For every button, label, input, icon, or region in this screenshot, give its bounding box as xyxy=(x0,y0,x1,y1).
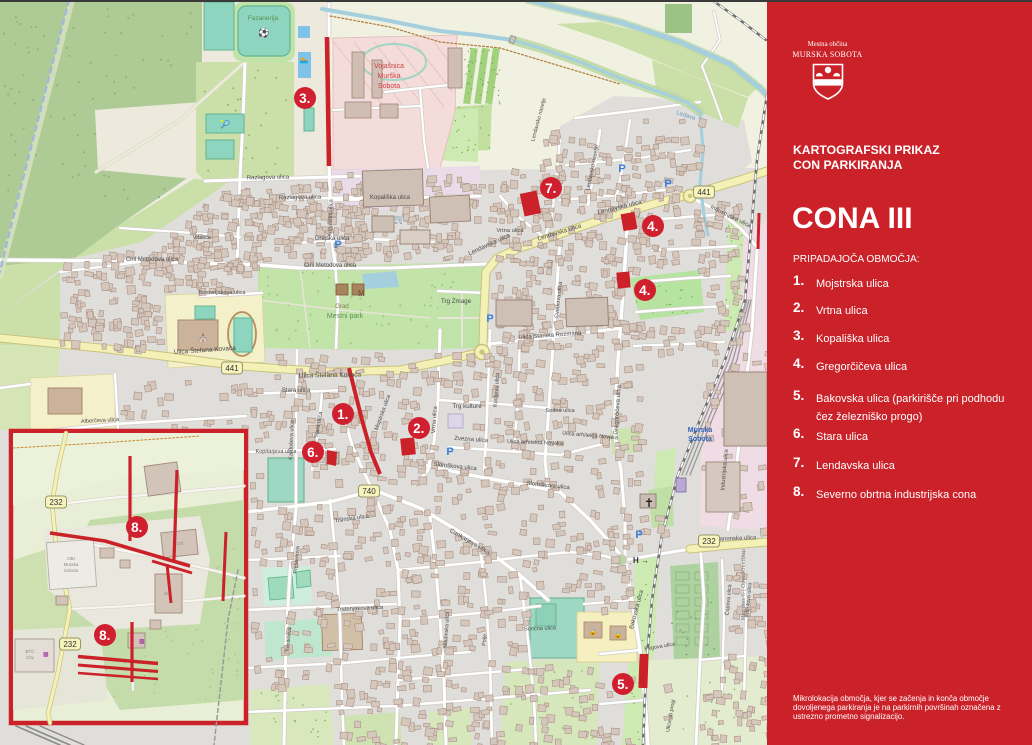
svg-text:BTC: BTC xyxy=(26,649,36,654)
svg-text:1.: 1. xyxy=(337,407,348,422)
svg-text:Razlagova ulica: Razlagova ulica xyxy=(247,175,290,182)
svg-text:Ciril Metodova ulica: Ciril Metodova ulica xyxy=(304,263,357,269)
svg-text:Fazanerija: Fazanerija xyxy=(248,15,279,22)
svg-text:7.: 7. xyxy=(545,181,556,196)
svg-text:H →: H → xyxy=(633,556,649,565)
svg-text:Razlagova ulica: Razlagova ulica xyxy=(279,195,322,202)
svg-text:Kopališka ulica: Kopališka ulica xyxy=(370,195,411,201)
svg-text:P: P xyxy=(635,529,642,541)
svg-text:Vojašnica: Vojašnica xyxy=(374,63,404,70)
svg-text:▩: ▩ xyxy=(139,639,145,645)
svg-text:P: P xyxy=(334,239,341,251)
svg-text:3.: 3. xyxy=(299,91,310,106)
svg-text:Murska: Murska xyxy=(64,562,79,567)
svg-text:🔒: 🔒 xyxy=(589,628,598,636)
svg-text:City: City xyxy=(26,655,34,660)
svg-text:441: 441 xyxy=(225,364,239,373)
svg-text:▩: ▩ xyxy=(43,652,49,658)
svg-text:Sobota: Sobota xyxy=(64,568,79,573)
svg-text:P: P xyxy=(664,178,671,190)
svg-text:Sobota: Sobota xyxy=(688,436,712,443)
svg-text:Map tiles © | OpenStreetMap: Map tiles © | OpenStreetMap xyxy=(740,549,747,620)
svg-text:🛒: 🛒 xyxy=(394,213,405,224)
svg-text:232: 232 xyxy=(63,640,77,649)
svg-text:Sodna ulica: Sodna ulica xyxy=(545,408,575,414)
svg-text:6.: 6. xyxy=(307,445,318,460)
svg-text:Ciril Metodova ulica: Ciril Metodova ulica xyxy=(126,257,179,263)
svg-text:5.: 5. xyxy=(617,677,628,692)
svg-text:Murška: Murška xyxy=(378,73,401,80)
svg-text:🏊: 🏊 xyxy=(300,57,309,64)
svg-text:Vrbišče: Vrbišče xyxy=(193,235,211,241)
svg-text:232: 232 xyxy=(49,498,63,507)
svg-text:P: P xyxy=(486,313,493,325)
svg-text:🔒: 🔒 xyxy=(614,631,623,639)
svg-text:Trg kulture: Trg kulture xyxy=(452,403,482,410)
svg-text:Mestni park: Mestni park xyxy=(327,313,364,320)
svg-text:Sončna ulica: Sončna ulica xyxy=(524,625,557,632)
svg-text:232: 232 xyxy=(702,537,716,546)
svg-text:Stara ulica: Stara ulica xyxy=(282,388,311,394)
svg-text:Trg Zmage: Trg Zmage xyxy=(441,298,472,305)
svg-text:P: P xyxy=(446,446,453,458)
svg-text:4.: 4. xyxy=(647,219,658,234)
svg-text:Polje: Polje xyxy=(481,634,488,646)
svg-text:Murska: Murska xyxy=(688,427,713,434)
svg-text:Borovnjakova ulica: Borovnjakova ulica xyxy=(199,290,247,296)
svg-text:Grad: Grad xyxy=(335,303,349,310)
svg-text:OŠ: OŠ xyxy=(177,540,184,546)
svg-text:M: M xyxy=(358,289,365,298)
svg-text:8.: 8. xyxy=(131,520,142,535)
svg-text:⛪: ⛪ xyxy=(198,332,208,342)
svg-text:OBI: OBI xyxy=(67,556,75,561)
svg-text:⚽: ⚽ xyxy=(257,27,269,38)
svg-text:Sobota: Sobota xyxy=(378,83,400,90)
svg-text:🎾: 🎾 xyxy=(220,119,230,129)
svg-text:8.: 8. xyxy=(99,628,110,643)
svg-text:Vrtna ulica: Vrtna ulica xyxy=(496,228,524,234)
svg-text:P: P xyxy=(618,163,625,175)
svg-text:740: 740 xyxy=(362,487,376,496)
svg-text:441: 441 xyxy=(697,188,711,197)
svg-text:Grajska ulica: Grajska ulica xyxy=(315,236,350,242)
svg-text:4.: 4. xyxy=(639,283,650,298)
svg-text:✝: ✝ xyxy=(644,496,654,510)
svg-text:2.: 2. xyxy=(413,421,424,436)
